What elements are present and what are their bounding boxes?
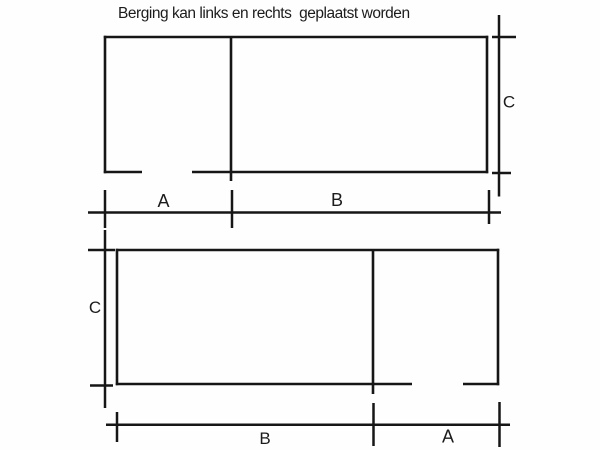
svg-text:B: B: [259, 429, 270, 448]
svg-text:B: B: [331, 190, 343, 210]
svg-text:C: C: [503, 93, 515, 112]
svg-text:A: A: [442, 427, 454, 447]
svg-text:A: A: [157, 191, 169, 211]
svg-text:Berging kan links en rechts g: Berging kan links en rechts geplaatst wo…: [118, 5, 410, 22]
svg-text:C: C: [89, 298, 101, 317]
